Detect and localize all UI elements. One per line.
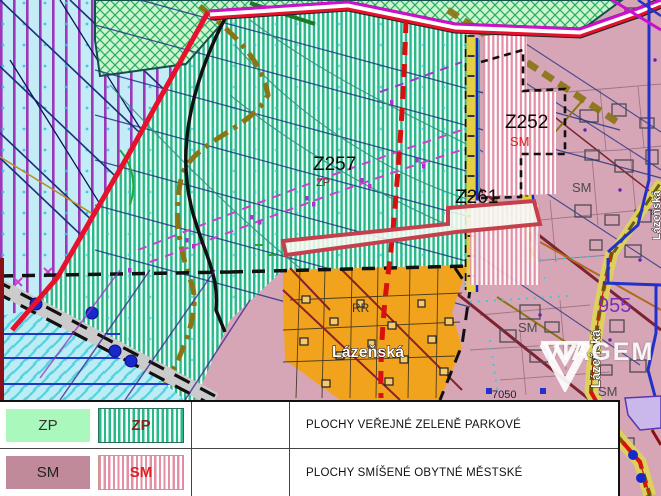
label-955: 955 <box>598 295 631 317</box>
legend-spacer-zp <box>192 402 290 449</box>
label-z257-type: ZP <box>316 177 330 189</box>
legend-swatches-sm: SM SM <box>0 449 192 496</box>
label-z261: Z261 <box>455 187 498 208</box>
label-street-lazenska: Lázeňská <box>332 344 404 361</box>
label-rr: RR <box>352 301 370 315</box>
plan-viewer: Z257 ZP Z252 SM Z261 RR SM SM SM Lázeňsk… <box>0 0 661 496</box>
legend-swatch-zp-striped: ZP <box>98 408 184 443</box>
label-z252: Z252 <box>505 112 548 133</box>
legend-swatch-sm-solid: SM <box>6 456 90 489</box>
legend-text-zp: PLOCHY VEŘEJNÉ ZELENĚ PARKOVÉ <box>290 419 521 431</box>
label-sm-b: SM <box>518 320 538 335</box>
legend-swatch-zp-solid: ZP <box>6 409 90 442</box>
label-sm-a: SM <box>572 180 592 195</box>
label-z257: Z257 <box>313 154 356 175</box>
label-street-lazenska-vertical: Lázeňská <box>588 329 603 388</box>
legend-swatches-zp: ZP ZP <box>0 402 192 449</box>
label-street-edge: Lázeňská <box>651 190 661 240</box>
legend-desc-sm: PLOCHY SMÍŠENÉ OBYTNÉ MĚSTSKÉ <box>290 449 618 496</box>
label-z252-type: SM <box>510 134 530 149</box>
map-legend: ZP ZP PLOCHY VEŘEJNÉ ZELENĚ PARKOVÉ SM S… <box>0 400 620 496</box>
legend-spacer-sm <box>192 449 290 496</box>
legend-desc-zp: PLOCHY VEŘEJNÉ ZELENĚ PARKOVÉ <box>290 402 618 449</box>
legend-text-sm: PLOCHY SMÍŠENÉ OBYTNÉ MĚSTSKÉ <box>290 467 522 479</box>
legend-swatch-sm-striped: SM <box>98 455 184 490</box>
